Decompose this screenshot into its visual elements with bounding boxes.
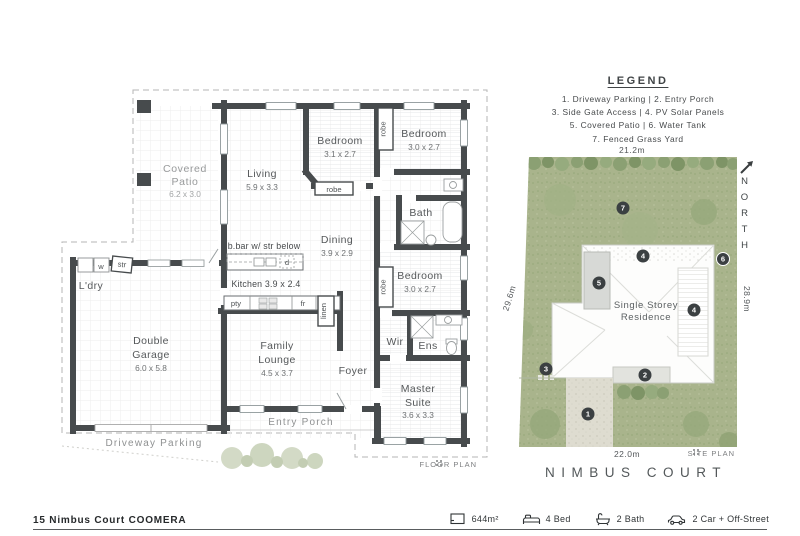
- covered-patio-dims: 6.2 x 3.0: [169, 189, 201, 199]
- legend-row: 1. Driveway Parking | 2. Entry Porch: [527, 93, 749, 106]
- stat-cars: 2 Car + Off-Street: [667, 512, 769, 526]
- marker-5: 5: [593, 277, 606, 290]
- patio-post: [137, 173, 151, 186]
- stat-baths: 2 Bath: [594, 512, 645, 526]
- stat-label: 644m²: [472, 514, 499, 524]
- property-address: 15 Nimbus Court COOMERA: [33, 515, 186, 526]
- washer-label: w: [97, 262, 104, 271]
- garage-label2: Garage: [132, 349, 169, 361]
- robe-label-bed2: robe: [326, 185, 341, 194]
- svg-text:2: 2: [643, 371, 647, 380]
- kitchen-island: [227, 254, 303, 270]
- shrubs: [221, 443, 323, 469]
- marker-4b: 4: [688, 304, 701, 317]
- master-dims: 3.6 x 3.3: [402, 410, 434, 420]
- master-label2: Suite: [405, 397, 431, 409]
- marker-6: 6: [717, 253, 730, 266]
- dining-label: Dining: [321, 234, 353, 246]
- entry-porch-label: Entry Porch: [268, 417, 333, 428]
- driveway-parking-label: Driveway Parking: [105, 438, 202, 449]
- north-arrow-icon: [741, 161, 753, 173]
- linen-label: linen: [319, 303, 328, 319]
- marker-3: 3: [540, 363, 553, 376]
- robe-label-bed4: robe: [379, 279, 388, 294]
- site-plan-tag: SITE PLAN: [688, 449, 735, 458]
- legend-row: 3. Side Gate Access | 4. PV Solar Panels: [527, 106, 749, 119]
- living-dims: 5.9 x 3.3: [246, 182, 278, 192]
- residence-label: Single Storey: [614, 300, 678, 311]
- fridge-label: fr: [301, 299, 306, 308]
- garage-door: [95, 425, 207, 432]
- living-label: Living: [247, 168, 277, 180]
- bedroom3-label: Bedroom: [401, 128, 446, 140]
- floor-plan: Covered Patio 6.2 x 3.0 Living 5.9 x 3.3…: [62, 90, 487, 469]
- bedroom2-label: Bedroom: [317, 135, 362, 147]
- stat-beds: 4 Bed: [522, 512, 571, 526]
- marker-4a: 4: [637, 250, 650, 263]
- bedroom3-dims: 3.0 x 2.7: [408, 142, 440, 152]
- dim-bottom: 22.0m: [614, 449, 640, 459]
- stat-label: 2 Car + Off-Street: [692, 514, 769, 524]
- bbar-label: b.bar w/ str below: [228, 241, 301, 251]
- garage-dims: 6.0 x 5.8: [135, 363, 167, 373]
- marker-1: 1: [582, 408, 595, 421]
- svg-text:5: 5: [597, 279, 601, 288]
- north-label: NORTH: [739, 176, 750, 256]
- svg-text:6: 6: [721, 255, 725, 264]
- svg-text:3: 3: [544, 365, 548, 374]
- marker-2: 2: [639, 369, 652, 382]
- bath-icon: [594, 512, 612, 526]
- family-dims: 4.5 x 3.7: [261, 368, 293, 378]
- bedroom2-dims: 3.1 x 2.7: [324, 149, 356, 159]
- garage-label: Double: [133, 335, 169, 347]
- legend-title: LEGEND: [608, 75, 669, 87]
- footer-divider: [33, 529, 767, 530]
- land-area-icon: [449, 512, 467, 526]
- dim-left: 29.6m: [501, 284, 518, 312]
- bedroom4-dims: 3.0 x 2.7: [404, 284, 436, 294]
- pantry-label: pty: [231, 299, 241, 308]
- dim-top: 21.2m: [619, 145, 645, 155]
- wir-label: Wir: [387, 336, 404, 348]
- patio-post: [137, 100, 151, 113]
- legend: LEGEND 1. Driveway Parking | 2. Entry Po…: [527, 71, 749, 146]
- dining-dims: 3.9 x 2.9: [321, 248, 353, 258]
- legend-row: 5. Covered Patio | 6. Water Tank: [527, 119, 749, 132]
- stat-land-area: 644m²: [449, 512, 499, 526]
- master-label: Master: [401, 383, 436, 395]
- car-icon: [667, 512, 687, 526]
- sink: [266, 258, 276, 266]
- bath-label: Bath: [409, 207, 432, 219]
- covered-patio-label: Covered: [163, 163, 207, 175]
- residence-label2: Residence: [621, 312, 671, 323]
- dishwasher-label: d: [285, 258, 289, 267]
- laundry-label: L'dry: [79, 280, 104, 292]
- site-plan: 7 5 4 6 4 3 2 1 Single Storey Residence …: [501, 145, 753, 480]
- legend-row: 7. Fenced Grass Yard: [527, 133, 749, 146]
- svg-text:1: 1: [586, 410, 590, 419]
- family-label2: Lounge: [258, 354, 295, 366]
- stat-label: 2 Bath: [617, 514, 645, 524]
- bedroom4-label: Bedroom: [397, 270, 442, 282]
- stat-label: 4 Bed: [546, 514, 571, 524]
- covered-patio-label2: Patio: [172, 176, 199, 188]
- ensuite-label: Ens: [418, 340, 437, 352]
- floor-plan-tag: FLOOR PLAN: [419, 460, 477, 469]
- street-name: NIMBUS COURT: [545, 465, 727, 480]
- foyer-label: Foyer: [339, 365, 368, 377]
- family-label: Family: [260, 340, 294, 352]
- property-stats: 644m² 4 Bed 2 Bath 2 Car + Off-Street: [449, 512, 769, 526]
- dim-right: 28.9m: [742, 286, 752, 312]
- bed-icon: [522, 512, 541, 526]
- floorplan-page: Covered Patio 6.2 x 3.0 Living 5.9 x 3.3…: [0, 0, 800, 536]
- svg-text:7: 7: [621, 204, 625, 213]
- robe-label-bed3: robe: [379, 121, 388, 136]
- storage-label: str: [117, 260, 127, 270]
- marker-7: 7: [617, 202, 630, 215]
- kitchen-label: Kitchen 3.9 x 2.4: [232, 279, 301, 289]
- sink: [254, 258, 264, 266]
